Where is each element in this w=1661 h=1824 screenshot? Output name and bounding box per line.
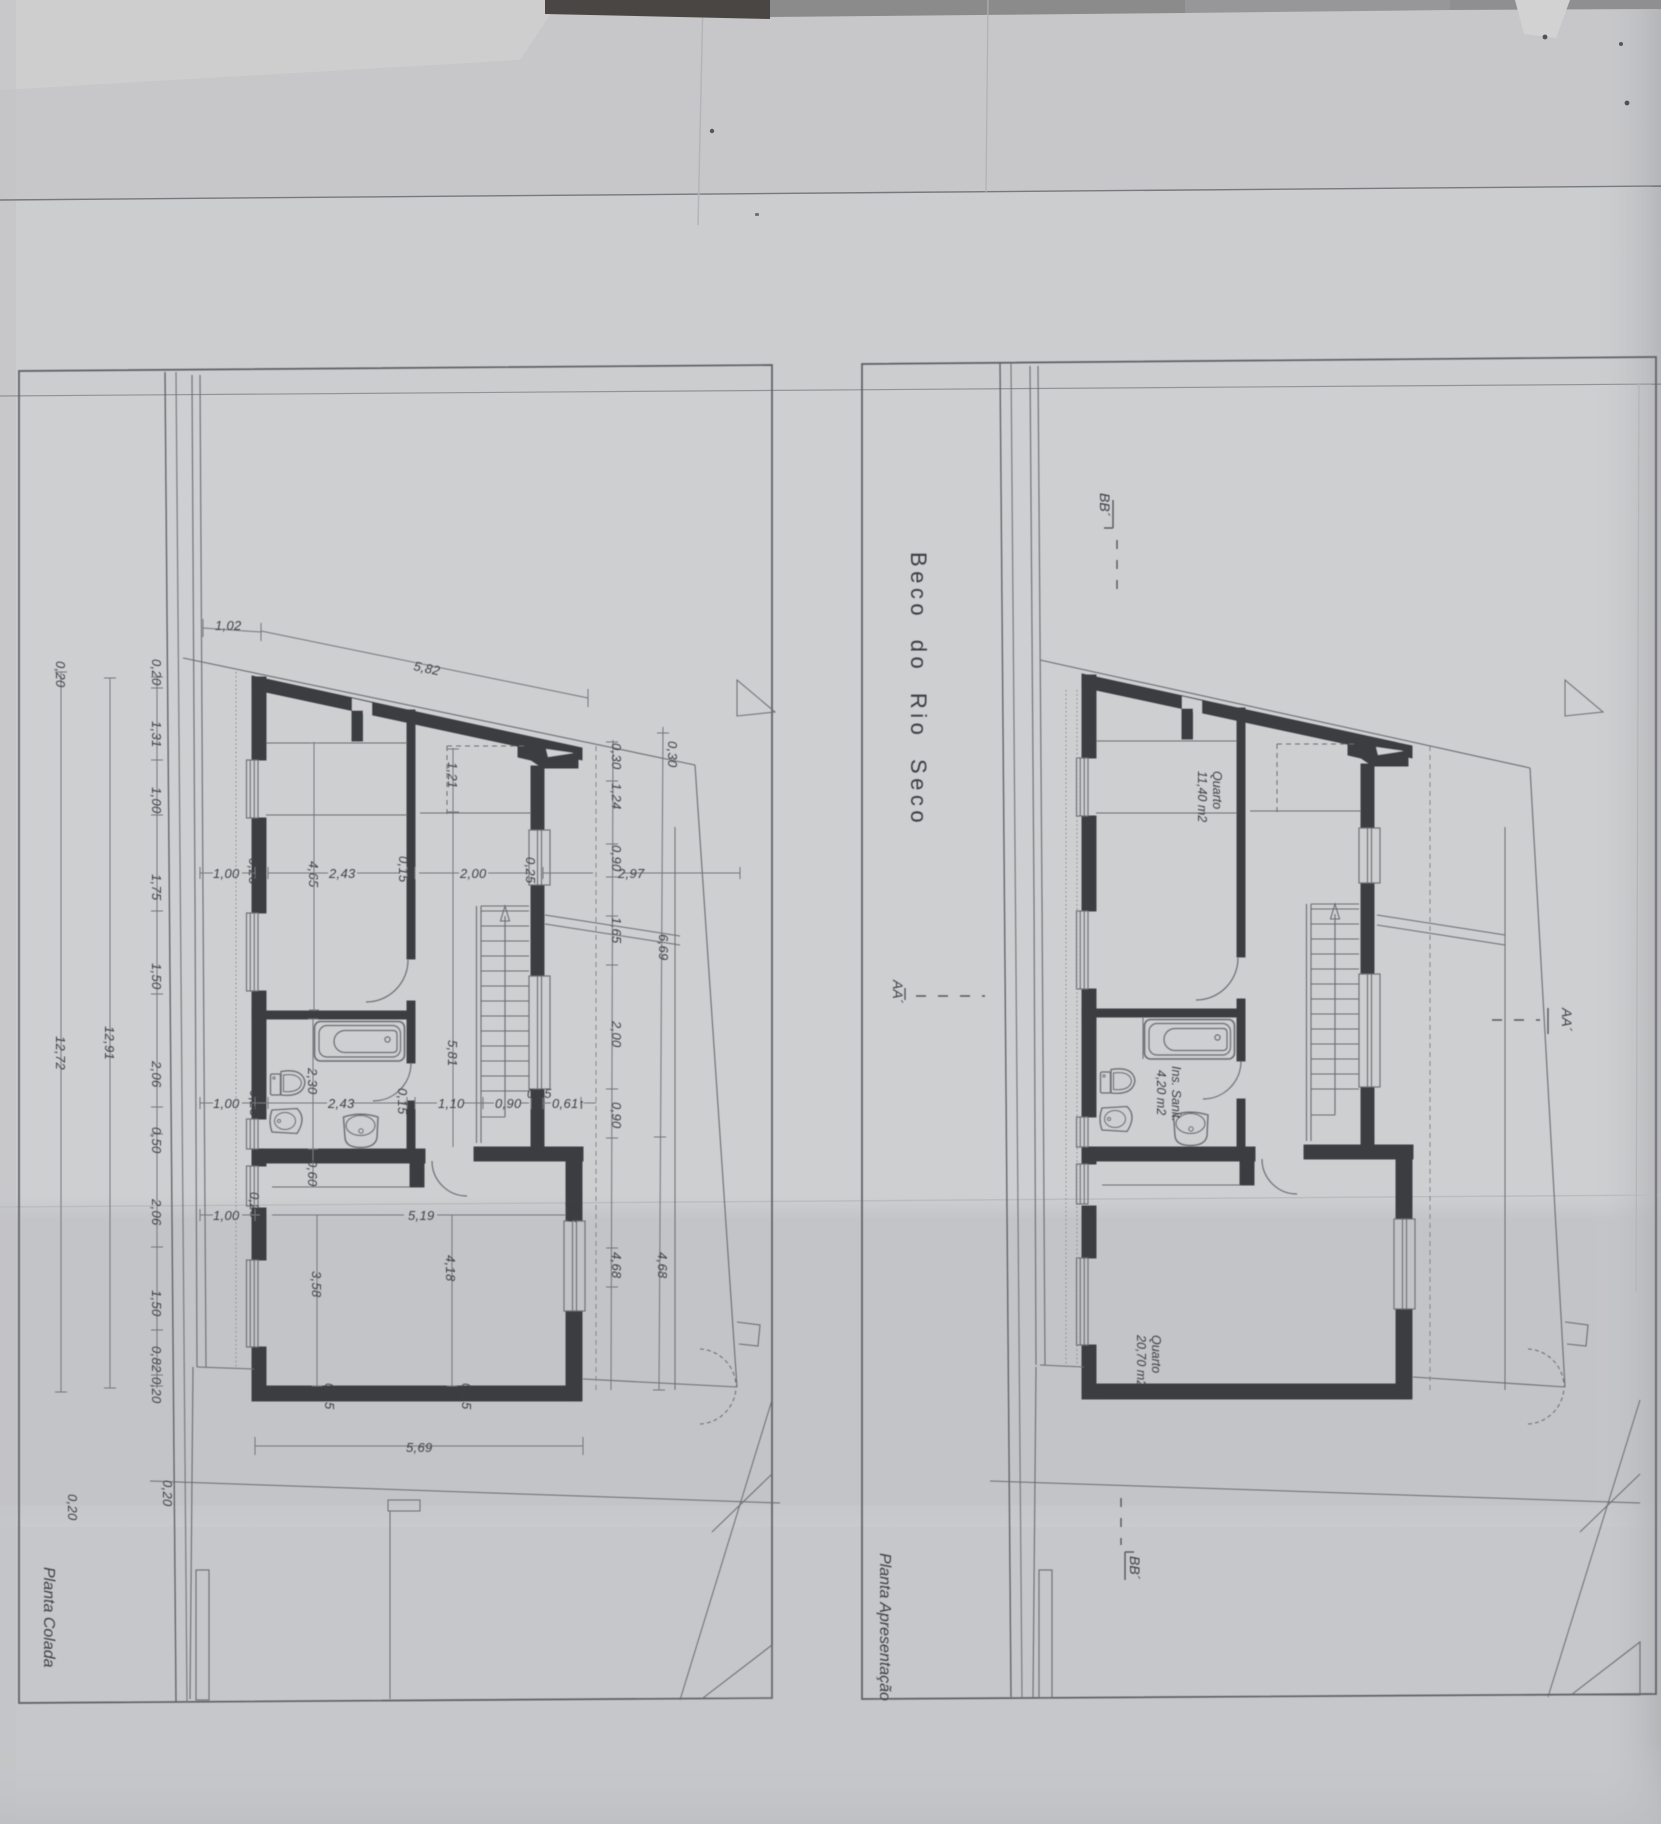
svg-text:12,91: 12,91 (102, 1026, 117, 1060)
svg-text:4,18: 4,18 (443, 1255, 458, 1282)
svg-text:4,68: 4,68 (609, 1252, 624, 1279)
svg-text:Quarto: Quarto (1210, 771, 1224, 809)
svg-text:4,20 m2: 4,20 m2 (1154, 1070, 1168, 1115)
svg-text:20,70 m2: 20,70 m2 (1134, 1334, 1148, 1387)
svg-text:2,43: 2,43 (327, 1096, 355, 1111)
svg-text:0,25: 0,25 (246, 858, 261, 885)
svg-text:1,21: 1,21 (445, 762, 460, 789)
svg-text:BB´: BB´ (1097, 493, 1113, 517)
svg-text:0,25: 0,25 (322, 1383, 337, 1410)
svg-text:3,58: 3,58 (309, 1271, 324, 1298)
svg-text:1,65: 1,65 (609, 917, 624, 944)
svg-text:1,50: 1,50 (149, 1290, 164, 1317)
svg-text:0,15: 0,15 (395, 1088, 410, 1115)
svg-text:1,02: 1,02 (215, 618, 242, 633)
svg-text:4,68: 4,68 (655, 1252, 670, 1279)
svg-text:AA´: AA´ (890, 979, 906, 1004)
svg-text:11,40 m2: 11,40 m2 (1195, 771, 1209, 822)
svg-text:2,06: 2,06 (149, 1060, 164, 1088)
svg-text:1,10: 1,10 (438, 1096, 465, 1111)
svg-text:1,50: 1,50 (149, 963, 164, 990)
svg-text:0,25: 0,25 (523, 857, 538, 884)
svg-text:0,20: 0,20 (65, 1494, 80, 1521)
svg-text:0,90: 0,90 (495, 1096, 522, 1111)
svg-text:0,60: 0,60 (305, 1160, 320, 1187)
svg-text:0,30: 0,30 (609, 743, 624, 770)
svg-text:0,90: 0,90 (609, 845, 624, 872)
svg-text:0,25: 0,25 (527, 1087, 551, 1101)
svg-text:5,69: 5,69 (406, 1440, 433, 1455)
svg-text:2,00: 2,00 (609, 1020, 624, 1048)
svg-text:1,00: 1,00 (213, 1208, 240, 1223)
svg-text:2,43: 2,43 (328, 866, 356, 881)
svg-text:0,20: 0,20 (160, 1480, 175, 1507)
svg-text:0,25: 0,25 (247, 1090, 262, 1117)
svg-text:0,82: 0,82 (149, 1346, 164, 1373)
svg-text:0,20: 0,20 (53, 661, 68, 688)
svg-text:0,25: 0,25 (564, 1196, 579, 1223)
svg-text:Quarto: Quarto (1149, 1335, 1163, 1373)
svg-text:0,15: 0,15 (396, 856, 411, 883)
svg-text:5,19: 5,19 (408, 1208, 435, 1223)
svg-text:AA´: AA´ (1559, 1007, 1575, 1032)
svg-text:0,20: 0,20 (149, 1377, 164, 1404)
svg-text:0,25: 0,25 (459, 1383, 474, 1410)
svg-text:6,69: 6,69 (656, 934, 671, 961)
svg-text:BB´: BB´ (1127, 1556, 1143, 1580)
svg-text:Planta Apresentação: Planta Apresentação (876, 1553, 893, 1701)
svg-text:2,30: 2,30 (305, 1067, 320, 1095)
svg-text:1,75: 1,75 (149, 874, 164, 901)
svg-text:2,06: 2,06 (149, 1198, 164, 1226)
svg-text:0,20: 0,20 (149, 659, 164, 686)
svg-text:1,00: 1,00 (149, 787, 164, 814)
svg-text:1,00: 1,00 (213, 866, 240, 881)
svg-text:0,90: 0,90 (609, 1102, 624, 1129)
svg-text:5,81: 5,81 (445, 1040, 460, 1067)
svg-text:Beco do Rio Seco: Beco do Rio Seco (906, 552, 931, 827)
svg-text:1,00: 1,00 (213, 1096, 240, 1111)
svg-text:1,31: 1,31 (149, 721, 164, 748)
svg-text:2,00: 2,00 (459, 866, 487, 881)
svg-text:Planta Colada: Planta Colada (40, 1567, 57, 1668)
svg-text:1,24: 1,24 (609, 783, 624, 810)
svg-text:Ins. Sanit.: Ins. Sanit. (1169, 1066, 1183, 1122)
svg-text:0,61↑: 0,61↑ (552, 1096, 585, 1111)
svg-text:12,72: 12,72 (53, 1036, 68, 1071)
svg-text:0,30: 0,30 (665, 741, 680, 768)
svg-text:0,50: 0,50 (149, 1127, 164, 1154)
